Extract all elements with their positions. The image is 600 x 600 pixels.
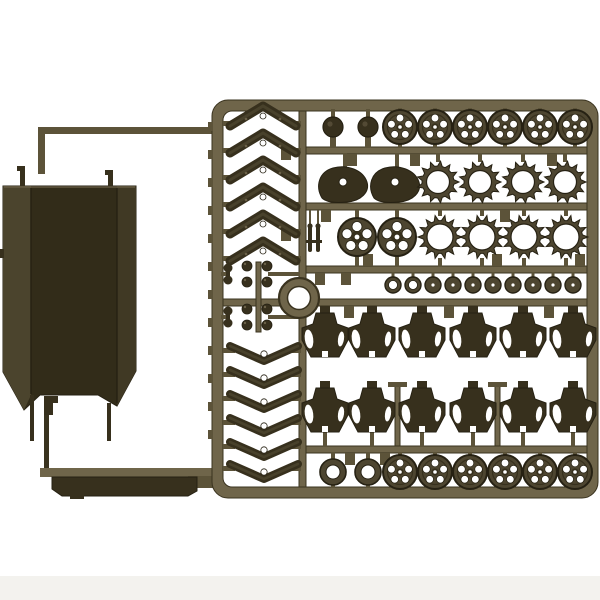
- wheel-lightening-hole: [580, 120, 588, 128]
- drive-sprocket-ring-center-hole: [554, 171, 577, 194]
- sprue-center-ring: [279, 278, 319, 318]
- wheel-lightening-hole: [493, 120, 501, 128]
- small-open-ring: [405, 277, 421, 293]
- wheel-lightening-hole: [510, 465, 518, 473]
- small-disc-pip: [451, 283, 454, 286]
- wheel-lightening-hole: [471, 475, 479, 483]
- wheel-lightening-hole: [458, 465, 466, 473]
- sprue-stem: [521, 430, 525, 447]
- chevron-hole: [260, 248, 266, 254]
- sprue-stem: [436, 153, 440, 162]
- frame-rib-tick: [208, 402, 213, 411]
- chevron-hole: [260, 194, 266, 200]
- frame-rib-tick: [208, 374, 213, 383]
- fitting-highlight: [244, 322, 246, 324]
- final-drive-housing: [371, 167, 420, 203]
- wheel-lightening-hole: [436, 475, 444, 483]
- small-cap-disc: [485, 277, 501, 293]
- wheel-lightening-hole: [475, 465, 483, 473]
- frame-rib-tick: [208, 206, 213, 215]
- wheel-lightening-hole: [501, 114, 509, 122]
- wheel-lightening-hole: [528, 120, 536, 128]
- hub-knob: [358, 117, 378, 137]
- ejector-tab: [547, 154, 557, 166]
- frame-rib-tick: [208, 346, 213, 355]
- hull-panel-prong: [30, 395, 34, 441]
- idler-star-ring-center-hole: [553, 224, 579, 250]
- bogie-notch: [570, 426, 576, 432]
- sprue-stem: [370, 430, 374, 447]
- small-cap-disc: [465, 277, 481, 293]
- ejector-tab: [321, 210, 331, 222]
- runner-bar: [302, 147, 587, 154]
- sprue-stem: [309, 210, 311, 225]
- bogie-notch: [419, 351, 425, 357]
- small-cap-disc: [425, 277, 441, 293]
- wheel-lightening-hole: [440, 120, 448, 128]
- ejector-tab: [347, 154, 357, 166]
- bogie-notch: [322, 426, 328, 432]
- wheel-lightening-hole: [391, 130, 399, 138]
- fitting-highlight: [264, 306, 266, 308]
- sprue-stem: [438, 258, 442, 267]
- fitting-knob: [262, 304, 272, 314]
- wheel-axle-hole: [538, 470, 542, 474]
- wishbone-hole: [261, 469, 267, 475]
- idler-star-ring-center-hole: [511, 224, 537, 250]
- small-cap-disc: [565, 277, 581, 293]
- wheel-lightening-hole: [531, 130, 539, 138]
- chevron-stud: [245, 199, 248, 202]
- wheel-lightening-hole: [423, 465, 431, 473]
- disc-hole: [392, 222, 402, 232]
- bogie-notch: [570, 351, 576, 357]
- chevron-stud: [279, 253, 282, 256]
- runner-bar-bottom: [40, 468, 218, 477]
- ejector-tab: [345, 453, 355, 465]
- wishbone-hole: [261, 399, 267, 405]
- idler-star-ring-center-hole: [427, 224, 453, 250]
- fitting-knob: [242, 261, 252, 271]
- wheel-lightening-hole: [396, 459, 404, 467]
- wheel-lightening-hole: [405, 465, 413, 473]
- wheel-lightening-hole: [580, 465, 588, 473]
- wheel-axle-hole: [398, 125, 402, 129]
- fitting-knob: [262, 261, 272, 271]
- chevron-hole: [260, 221, 266, 227]
- chevron-stud: [279, 145, 282, 148]
- fitting-knob: [242, 320, 252, 330]
- wheel-lightening-hole: [571, 114, 579, 122]
- wheel-axle-hole: [503, 470, 507, 474]
- small-disc-hole: [409, 281, 418, 290]
- small-disc-pip: [471, 283, 474, 286]
- disc-hole: [352, 222, 362, 232]
- wheel-axle-hole: [468, 125, 472, 129]
- pin-lug: [314, 240, 322, 243]
- small-cap-disc: [505, 277, 521, 293]
- small-cap-disc: [445, 277, 461, 293]
- chevron-stud: [245, 253, 248, 256]
- frame-rib-tick: [208, 178, 213, 187]
- sprue-stem: [564, 210, 568, 216]
- road-wheel: [418, 455, 452, 489]
- hull-panel-prong: [107, 403, 111, 441]
- knob-body: [323, 117, 343, 137]
- sprue-stem: [420, 430, 424, 447]
- ejector-tab: [363, 254, 373, 266]
- drive-sprocket-ring-center-hole: [469, 171, 492, 194]
- sprocket-disc: [378, 218, 416, 256]
- wheel-lightening-hole: [506, 475, 514, 483]
- cluster-gate: [268, 272, 300, 276]
- wheel-lightening-hole: [563, 120, 571, 128]
- chevron-stud: [245, 172, 248, 175]
- chevron-stud: [279, 118, 282, 121]
- hull-panel-hook-cap: [17, 166, 25, 171]
- hull-panel-bracket: [44, 396, 58, 403]
- wheel-lightening-hole: [391, 475, 399, 483]
- wheel-lightening-hole: [545, 120, 553, 128]
- sprue-stem: [438, 210, 442, 216]
- sprue-stem: [330, 136, 336, 148]
- hull-panel-edge-nub: [0, 249, 4, 258]
- road-wheel: [488, 455, 522, 489]
- frame-rib-tick: [208, 318, 213, 327]
- wheel-lightening-hole: [496, 130, 504, 138]
- road-wheel: [488, 110, 522, 144]
- sprue-photo-canvas: [0, 0, 600, 600]
- fitting-knob: [262, 320, 272, 330]
- road-wheel: [453, 455, 487, 489]
- disc-hole: [362, 229, 372, 239]
- bogie-notch: [470, 426, 476, 432]
- knob-highlight: [362, 121, 367, 126]
- wheel-lightening-hole: [576, 130, 584, 138]
- wheel-lightening-hole: [458, 120, 466, 128]
- fitting-link: [226, 311, 230, 323]
- fitting-knob: [262, 277, 272, 287]
- chevron-hole: [260, 113, 266, 119]
- sprue-photo: [0, 0, 600, 600]
- pin-lug: [306, 240, 314, 243]
- hull-panel-hook-cap: [105, 170, 113, 175]
- drive-sprocket-ring-center-hole: [427, 171, 450, 194]
- frame-rib-tick: [208, 430, 213, 439]
- sprue-stem: [365, 136, 371, 148]
- wheel-lightening-hole: [510, 120, 518, 128]
- sprue-stem: [522, 258, 526, 267]
- small-cap-disc: [525, 277, 541, 293]
- chevron-stud: [245, 118, 248, 121]
- sprue-stem: [478, 153, 482, 162]
- frame-rib-tick: [208, 234, 213, 243]
- wheel-lightening-hole: [506, 130, 514, 138]
- pin-head: [307, 223, 312, 228]
- road-wheel: [523, 110, 557, 144]
- wheel-lightening-hole: [388, 120, 396, 128]
- hull-panel-left-fold: [3, 186, 31, 410]
- wheel-axle-hole: [573, 470, 577, 474]
- wheel-lightening-hole: [401, 130, 409, 138]
- wheel-lightening-hole: [388, 465, 396, 473]
- road-wheel: [523, 455, 557, 489]
- runner-vertical: [256, 262, 261, 332]
- small-disc-pip: [431, 283, 434, 286]
- ejector-tab: [575, 254, 585, 266]
- chevron-stud: [279, 226, 282, 229]
- ejector-tab: [341, 273, 351, 285]
- ejector-tab: [315, 273, 325, 285]
- wheel-lightening-hole: [496, 475, 504, 483]
- thin-strip-tab: [70, 493, 84, 499]
- disc-axle-hole: [395, 235, 400, 240]
- wheel-axle-hole: [538, 125, 542, 129]
- drive-sprocket-ring-center-hole: [512, 171, 535, 194]
- open-ring-part: [355, 459, 381, 485]
- runner-tee-cap: [388, 382, 407, 387]
- bogie-notch: [520, 426, 526, 432]
- photo-shadow-band: [0, 576, 600, 600]
- small-disc-pip: [491, 283, 494, 286]
- wheel-axle-hole: [398, 470, 402, 474]
- wheel-lightening-hole: [528, 465, 536, 473]
- center-ring-hole: [288, 287, 311, 310]
- sprue-stem: [480, 258, 484, 267]
- road-wheel: [418, 110, 452, 144]
- disc-hole: [342, 229, 352, 239]
- wheel-axle-hole: [503, 125, 507, 129]
- chevron-stud: [245, 145, 248, 148]
- wheel-lightening-hole: [571, 459, 579, 467]
- frame-rib-tick: [208, 150, 213, 159]
- wheel-lightening-hole: [563, 465, 571, 473]
- wheel-axle-hole: [433, 125, 437, 129]
- ring-hole: [361, 465, 375, 479]
- sprue-stem: [395, 153, 399, 167]
- hull-panel-bracket: [44, 403, 53, 415]
- sprue-stem: [563, 153, 567, 162]
- road-wheel: [383, 455, 417, 489]
- wishbone-hole: [261, 423, 267, 429]
- road-wheel: [558, 110, 592, 144]
- wishbone-hole: [261, 351, 267, 357]
- sprocket-disc: [338, 218, 376, 256]
- wheel-lightening-hole: [440, 465, 448, 473]
- sprue-stem: [480, 210, 484, 216]
- wheel-axle-hole: [433, 470, 437, 474]
- wishbone-hole: [261, 447, 267, 453]
- wheel-lightening-hole: [566, 130, 574, 138]
- fitting-highlight: [264, 263, 266, 265]
- wheel-lightening-hole: [401, 475, 409, 483]
- runner-bar-top: [38, 127, 218, 134]
- disc-hole: [402, 229, 412, 239]
- chevron-stud: [279, 199, 282, 202]
- wheel-lightening-hole: [501, 459, 509, 467]
- housing-hole: [391, 178, 399, 186]
- fitting-link: [226, 268, 230, 280]
- sprue-stem: [323, 430, 327, 447]
- disc-hole: [382, 229, 392, 239]
- disc-axle-hole: [355, 235, 360, 240]
- wheel-lightening-hole: [541, 130, 549, 138]
- knob-body: [358, 117, 378, 137]
- wheel-lightening-hole: [531, 475, 539, 483]
- wheel-lightening-hole: [466, 114, 474, 122]
- wheel-lightening-hole: [431, 114, 439, 122]
- bogie-notch: [322, 351, 328, 357]
- sprue-stem: [317, 210, 319, 225]
- fitting-highlight: [244, 279, 246, 281]
- wheel-lightening-hole: [461, 130, 469, 138]
- wheel-lightening-hole: [471, 130, 479, 138]
- ejector-tab: [344, 306, 354, 318]
- hub-knob: [323, 117, 343, 137]
- road-wheel: [383, 110, 417, 144]
- small-open-ring: [385, 277, 401, 293]
- chevron-hole: [260, 140, 266, 146]
- open-ring-part: [320, 459, 346, 485]
- fitting-knob: [242, 277, 252, 287]
- sprue-stem: [471, 430, 475, 447]
- small-disc-hole: [389, 281, 398, 290]
- ejector-tab: [492, 254, 502, 266]
- runner-tee-cap: [488, 382, 507, 387]
- bogie-notch: [369, 351, 375, 357]
- ejector-tab: [410, 154, 420, 166]
- wheel-lightening-hole: [405, 120, 413, 128]
- sprue-stem: [571, 430, 575, 447]
- fitting-highlight: [264, 322, 266, 324]
- wheel-lightening-hole: [396, 114, 404, 122]
- hull-panel-right-fold: [117, 186, 136, 406]
- fitting-highlight: [244, 263, 246, 265]
- frame-rib-tick: [208, 290, 213, 299]
- sprue-stem: [343, 153, 347, 167]
- runner-bar: [302, 266, 587, 273]
- idler-star-ring-center-hole: [469, 224, 495, 250]
- wheel-lightening-hole: [466, 459, 474, 467]
- wheel-lightening-hole: [566, 475, 574, 483]
- bogie-notch: [419, 426, 425, 432]
- ring-hole: [326, 465, 340, 479]
- small-cap-disc: [545, 277, 561, 293]
- bogie-notch: [369, 426, 375, 432]
- chevron-hole: [260, 167, 266, 173]
- bogie-notch: [520, 351, 526, 357]
- wishbone-hole: [261, 375, 267, 381]
- runner-bar: [302, 446, 587, 453]
- bogie-notch: [470, 351, 476, 357]
- small-disc-pip: [531, 283, 534, 286]
- small-disc-pip: [571, 283, 574, 286]
- wheel-lightening-hole: [536, 459, 544, 467]
- chevron-stud: [245, 226, 248, 229]
- runner-bar: [302, 203, 587, 210]
- wheel-lightening-hole: [426, 130, 434, 138]
- housing-hole: [339, 178, 347, 186]
- road-wheel: [558, 455, 592, 489]
- chevron-stud: [279, 172, 282, 175]
- small-disc-pip: [551, 283, 554, 286]
- wheel-lightening-hole: [461, 475, 469, 483]
- wheel-lightening-hole: [545, 465, 553, 473]
- wheel-lightening-hole: [426, 475, 434, 483]
- wheel-lightening-hole: [475, 120, 483, 128]
- photo-shadow: [0, 576, 600, 600]
- ejector-tab: [544, 306, 554, 318]
- wheel-axle-hole: [468, 470, 472, 474]
- frame-rib-tick: [208, 122, 213, 131]
- knob-highlight: [327, 121, 332, 126]
- small-disc-pip: [511, 283, 514, 286]
- final-drive-housing: [319, 167, 368, 203]
- runner-bar: [223, 299, 587, 306]
- wheel-lightening-hole: [576, 475, 584, 483]
- wheel-lightening-hole: [423, 120, 431, 128]
- sprue-stem: [521, 153, 525, 162]
- pin-head: [315, 223, 320, 228]
- runner-bar-top-corner: [38, 127, 45, 174]
- hull-panel-part: [0, 166, 136, 441]
- wheel-axle-hole: [573, 125, 577, 129]
- sprue-stem: [564, 258, 568, 267]
- ejector-tab: [500, 210, 510, 222]
- wheel-lightening-hole: [541, 475, 549, 483]
- wheel-lightening-hole: [436, 130, 444, 138]
- wheel-lightening-hole: [431, 459, 439, 467]
- road-wheel: [453, 110, 487, 144]
- wheel-lightening-hole: [536, 114, 544, 122]
- wheel-lightening-hole: [493, 465, 501, 473]
- fitting-highlight: [264, 279, 266, 281]
- fitting-highlight: [244, 306, 246, 308]
- fitting-knob: [242, 304, 252, 314]
- ejector-tab: [444, 306, 454, 318]
- sprue-stem: [522, 210, 526, 216]
- frame-rib-tick: [208, 262, 213, 271]
